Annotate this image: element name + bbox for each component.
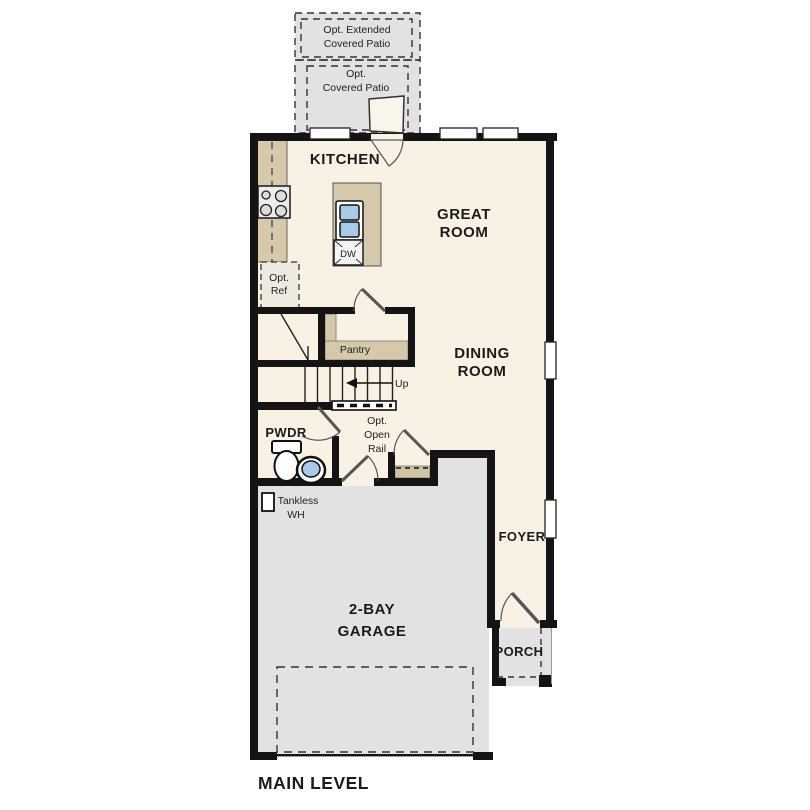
garage-floor [256,482,489,754]
wall-pantry-right [408,307,415,367]
floor-plan-drawing: Opt. Extended Covered Patio Opt. Covered… [0,0,810,810]
dining-room-label-line2: ROOM [458,363,507,380]
plan-title: MAIN LEVEL [258,773,369,793]
covered-patio-label-line2: Covered Patio [323,82,390,94]
kitchen-sink-icon [336,201,363,240]
dining-room-label-line1: DINING [454,345,510,362]
stove-icon [258,186,290,218]
garage-door-line [277,754,473,756]
garage-floor-upper [435,456,489,484]
wall-garage-top-left [250,478,342,486]
kitchen-label: KITCHEN [310,151,380,168]
toilet-icon [272,441,301,481]
porch-post [539,675,552,687]
opt-ref-label-line1: Opt. [269,272,289,284]
pantry-label: Pantry [340,344,371,356]
extended-patio-label-line2: Covered Patio [324,38,391,50]
wall-left [250,133,258,760]
dishwasher-icon: DW [334,240,363,265]
great-room-label-line1: GREAT [437,206,491,223]
wall-garage-bottom-right-stub [473,752,493,760]
covered-patio-label-line1: Opt. [346,68,366,80]
open-rail-label-line2: Open [364,429,390,441]
window-dining [545,342,556,379]
great-room-label-line2: ROOM [440,224,489,241]
wall-stairs-top [250,360,415,367]
patio-door-leaf [369,96,404,133]
wall-garage-top-right [430,450,495,458]
wall-pantry-top-left [250,307,355,314]
wall-pantry-left [318,307,325,367]
porch-label: PORCH [495,644,544,659]
window-foyer [545,500,556,538]
opt-ref-label-line2: Ref [271,285,287,297]
closet-door-opening [395,452,430,459]
stairs-up-label: Up [395,378,409,390]
garage-label-line2: GARAGE [338,623,407,640]
wall-closet-bottom [374,478,437,486]
front-door-opening [500,620,540,628]
wall-powder-right [332,436,339,485]
tankless-label-line2: WH [287,509,305,521]
open-rail-label-line1: Opt. [367,415,387,427]
extended-patio-label-line1: Opt. Extended [323,24,390,36]
garage-label-line1: 2-BAY [349,601,395,618]
window-great-room-1 [440,128,477,139]
wall-foyer-garage [487,450,495,628]
open-rail-label-line3: Rail [368,443,386,455]
foyer-label: FOYER [499,529,546,544]
wall-porch-foot [492,678,506,686]
garage-entry-opening [342,478,374,486]
wall-front-right-of-door [540,620,557,628]
powder-room-label: PWDR [265,425,307,440]
dishwasher-label: DW [340,249,356,260]
powder-sink-icon [297,457,325,483]
tankless-water-heater-icon [262,493,274,511]
window-great-room-2 [483,128,518,139]
wall-garage-bottom-left-stub [250,752,277,760]
floor-plan-page: Opt. Extended Covered Patio Opt. Covered… [0,0,810,810]
window-kitchen [310,128,350,139]
tankless-label-line1: Tankless [278,495,319,507]
wall-right [546,133,554,628]
